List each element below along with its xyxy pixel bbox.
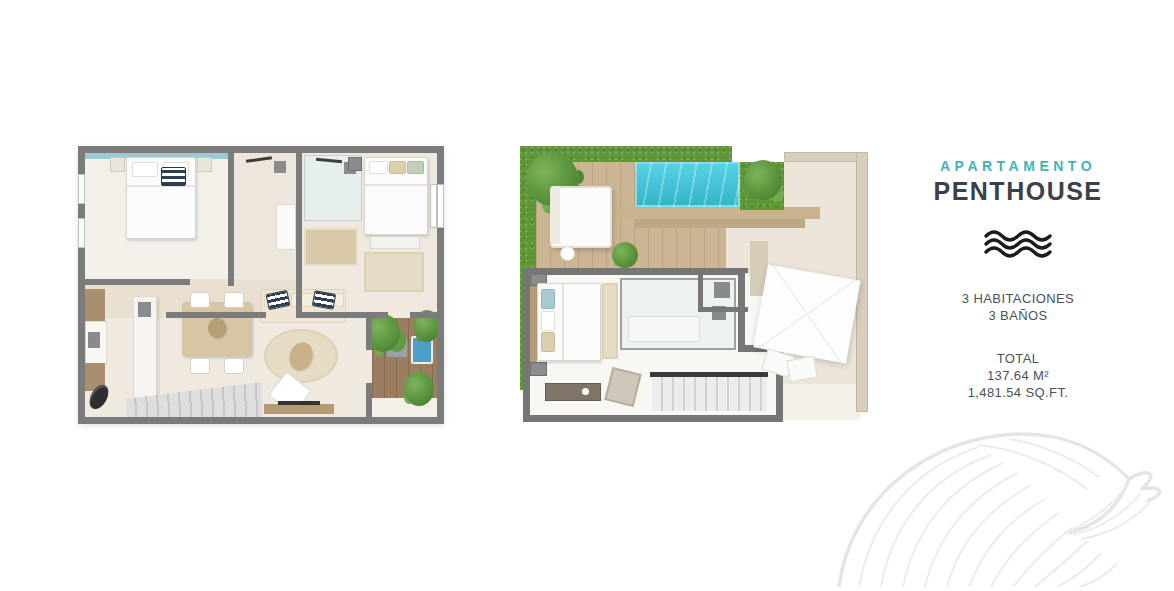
pillow: [389, 161, 406, 174]
pillow: [407, 161, 424, 174]
pillow: [541, 332, 555, 352]
bed-headboard: [530, 280, 537, 362]
shell-line-art-icon: [829, 415, 1174, 591]
pillow: [541, 311, 555, 331]
striped-pillow: [161, 167, 186, 186]
pillow: [369, 161, 388, 174]
nightstand: [110, 157, 125, 172]
bed-bench: [370, 236, 420, 249]
wall: [523, 268, 745, 275]
planter-palm: [744, 160, 782, 200]
plunge-pool: [635, 162, 740, 207]
wall: [296, 146, 302, 318]
closet-unit: [714, 282, 730, 298]
striped-pillow: [266, 290, 291, 310]
wall: [410, 312, 444, 318]
dining-chair: [224, 292, 244, 308]
pillow: [132, 162, 158, 177]
wall: [228, 146, 234, 286]
wall: [78, 146, 444, 153]
daybed-backrest: [550, 186, 560, 244]
nightstand: [348, 157, 362, 171]
wall: [738, 268, 745, 352]
shower-fixture: [274, 161, 286, 173]
wall: [523, 268, 530, 422]
window: [78, 174, 85, 204]
bedroom-2-bed: [364, 157, 428, 235]
nightstand: [530, 362, 547, 376]
wall: [78, 279, 190, 285]
wall: [366, 383, 372, 417]
wall: [523, 415, 783, 422]
apartment-category-label: APARTAMENTO: [930, 158, 1106, 174]
floorplan-level-1: [78, 146, 444, 424]
pool-step: [635, 219, 805, 228]
waves-icon: [930, 230, 1106, 262]
area-sqft: 1,481.54 SQ.FT.: [930, 384, 1106, 401]
suite-rug: [602, 283, 618, 359]
bench-detail: [582, 388, 589, 395]
bed-fold: [562, 284, 564, 360]
island-cooktop: [138, 302, 151, 317]
window: [437, 184, 444, 228]
dining-chair: [190, 292, 210, 308]
bathroom-shelf: [276, 204, 296, 250]
balcony-plant: [404, 372, 434, 406]
bed-bench: [545, 383, 601, 401]
wall: [366, 318, 372, 350]
master-bed: [537, 283, 601, 361]
pool-coping: [615, 207, 820, 219]
parapet-top: [784, 152, 866, 162]
side-table: [560, 246, 575, 261]
info-panel: APARTAMENTO PENTHOUSE 3 HABITACIONES 3 B…: [930, 158, 1106, 401]
area-m2: 137.64 M²: [930, 367, 1106, 384]
dining-chair: [190, 358, 210, 374]
deck-plant: [612, 242, 638, 268]
tv: [278, 401, 320, 405]
bedroom-2-rug: [364, 252, 424, 292]
tv-console: [264, 404, 334, 414]
wall: [166, 312, 266, 318]
penthouse-floorplan-poster: APARTAMENTO PENTHOUSE 3 HABITACIONES 3 B…: [0, 0, 1174, 591]
window: [430, 184, 437, 228]
apartment-title: PENTHOUSE: [930, 177, 1106, 206]
bathrooms-count: 3 BAÑOS: [930, 307, 1106, 324]
total-area: TOTAL 137.64 M² 1,481.54 SQ.FT.: [930, 350, 1106, 401]
bedroom-1-bed: [126, 157, 196, 239]
wall: [78, 417, 444, 424]
table-centerpiece: [208, 318, 226, 338]
kitchen-sink: [88, 332, 100, 348]
bathroom-vanity: [304, 228, 358, 266]
total-label: TOTAL: [930, 350, 1106, 367]
bed-fold: [365, 184, 427, 186]
dining-chair: [224, 358, 244, 374]
bathtub: [628, 316, 700, 342]
kitchen-cabinet-wood: [85, 289, 105, 321]
nightstand: [197, 157, 212, 172]
bedrooms-count: 3 HABITACIONES: [930, 290, 1106, 307]
floorplan-rooftop: [520, 146, 876, 422]
features: 3 HABITACIONES 3 BAÑOS: [930, 290, 1106, 324]
wall: [296, 312, 388, 318]
stairs: [652, 377, 767, 411]
pillow: [541, 289, 555, 309]
window: [78, 218, 85, 248]
